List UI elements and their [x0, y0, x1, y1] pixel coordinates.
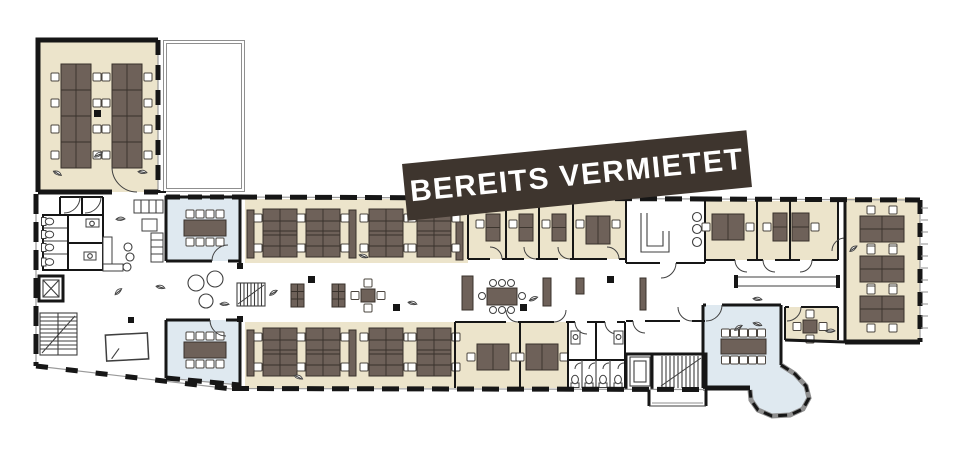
- stairs-west: [40, 313, 77, 355]
- door-arc: [554, 310, 566, 322]
- door-arc: [661, 263, 676, 278]
- toilet-icon: [585, 375, 593, 387]
- door-arc: [64, 197, 80, 213]
- break-table: [351, 279, 385, 312]
- door-arc: [633, 321, 645, 333]
- rug: [105, 333, 148, 361]
- plant-icon: [269, 289, 279, 296]
- sink: [614, 331, 623, 344]
- toilet-icon: [614, 375, 622, 387]
- lounge-table: [188, 275, 204, 291]
- counter: [103, 237, 112, 264]
- wc-west: [42, 215, 104, 270]
- lounge-table: [199, 294, 213, 308]
- sink: [571, 331, 580, 344]
- plant-icon: [220, 301, 230, 307]
- toilet-icon: [42, 218, 54, 226]
- elevator-icon: [43, 280, 59, 297]
- counter: [103, 264, 123, 271]
- plant-icon: [408, 299, 418, 306]
- toilet-icon: [42, 231, 54, 239]
- cabinet: [576, 278, 584, 294]
- elevator-west: [39, 276, 63, 301]
- cabinet: [462, 276, 473, 310]
- locker: [247, 210, 254, 258]
- door-arc: [678, 307, 692, 321]
- door-arc: [735, 260, 747, 272]
- stairs-icon: [661, 358, 701, 386]
- side-table: [142, 219, 157, 231]
- toilet-icon: [42, 258, 54, 266]
- window-wall: [705, 199, 920, 200]
- floor-plan: [0, 0, 960, 459]
- locker: [349, 210, 356, 258]
- stool: [693, 238, 702, 247]
- vestibule-west: [60, 197, 103, 215]
- plant-icon: [529, 296, 539, 301]
- stairs-corridor: [237, 283, 265, 306]
- zone-open-office-south-band: [247, 328, 460, 381]
- toilet-icon: [571, 375, 579, 387]
- plant-icon: [113, 288, 123, 296]
- locker: [247, 330, 254, 376]
- floorplan-page: BEREITS VERMIETET: [0, 0, 960, 459]
- meeting-table: [487, 288, 517, 305]
- toilet-icon: [599, 375, 607, 387]
- plant-icon: [156, 283, 166, 290]
- zone-lounge-west: [188, 271, 229, 308]
- locker: [349, 330, 356, 376]
- zone-kitchen: [626, 201, 705, 278]
- ramp: [737, 277, 837, 286]
- column: [94, 110, 101, 117]
- lounge-table: [207, 271, 223, 287]
- zone-wc-south: [568, 322, 625, 388]
- zone-corridor-central: [237, 263, 646, 322]
- plant-icon: [753, 296, 763, 303]
- entrance-stoop: [649, 390, 706, 406]
- door-arc: [85, 197, 101, 213]
- stool: [693, 225, 702, 234]
- conference-table: [721, 329, 766, 364]
- stool: [693, 213, 702, 222]
- door-arc: [800, 260, 812, 272]
- terrace: [164, 41, 245, 192]
- cabinet: [640, 278, 646, 310]
- locker: [456, 222, 463, 260]
- door-arc: [763, 260, 775, 272]
- toilet-icon: [42, 244, 54, 252]
- cabinet: [543, 278, 551, 306]
- plant-icon: [116, 216, 126, 221]
